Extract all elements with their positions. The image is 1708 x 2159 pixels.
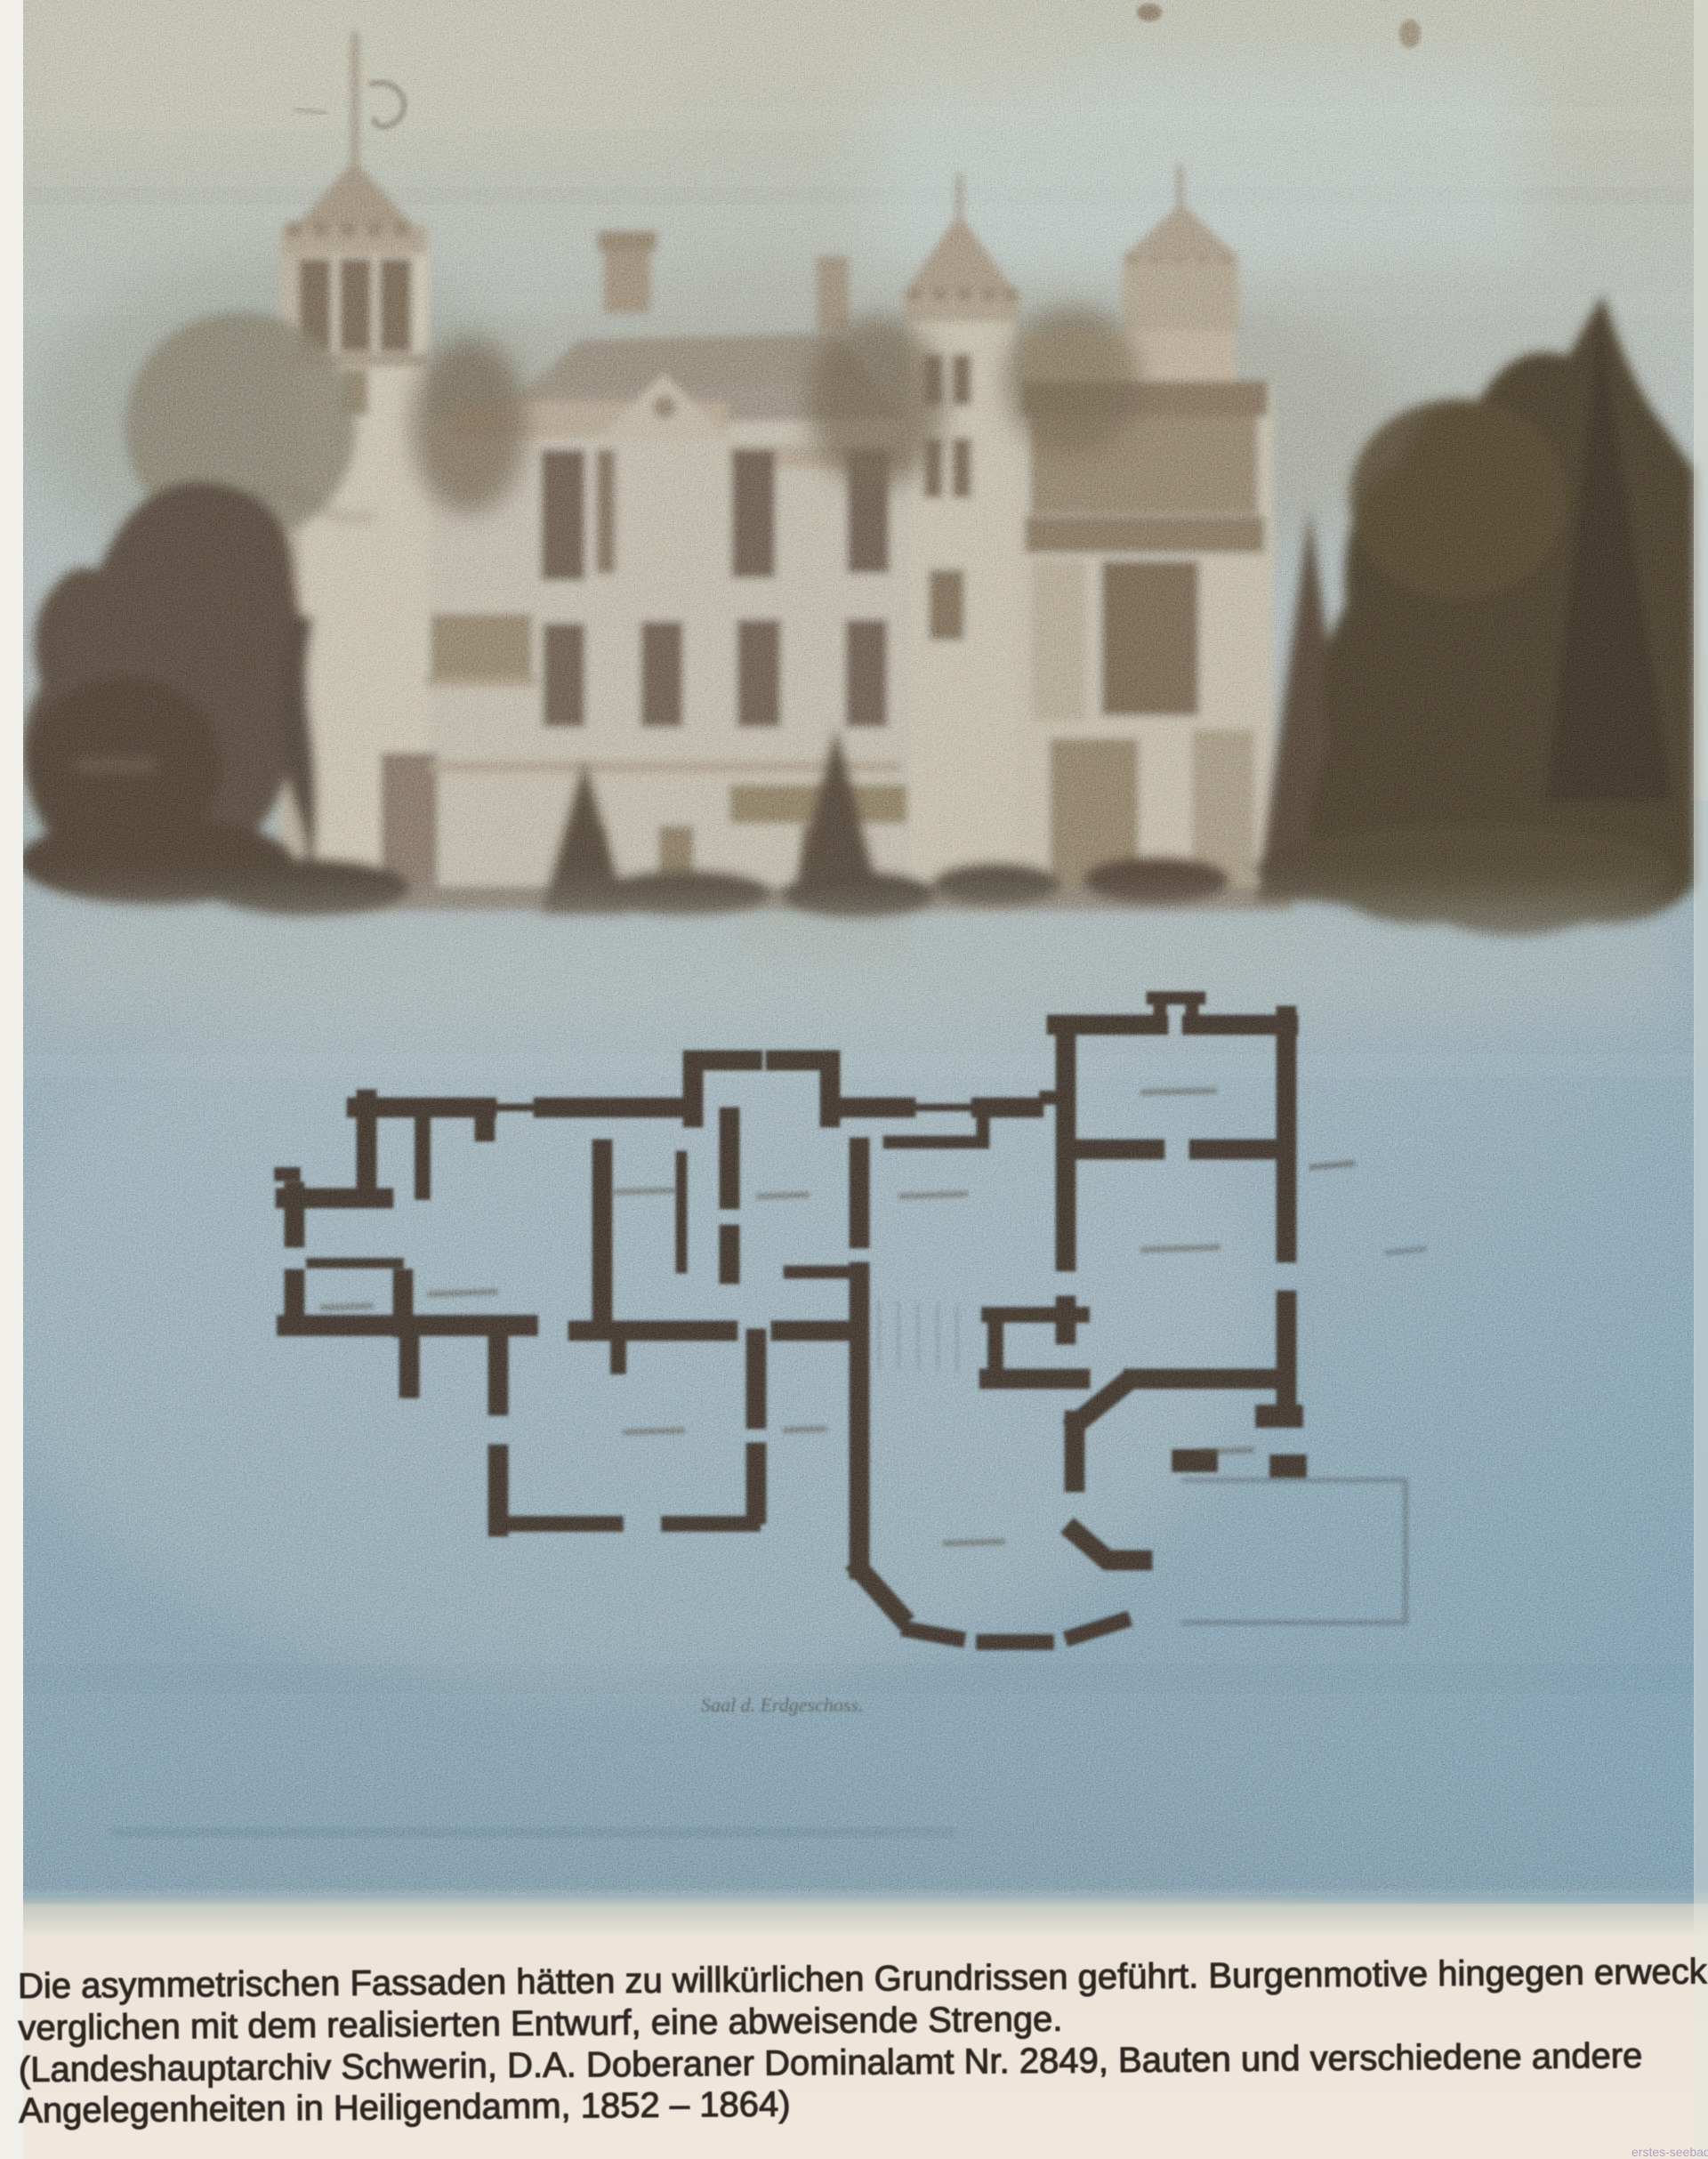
svg-text:Angelegenheiten in Heiligendam: Angelegenheiten in Heiligendamm, 1852 – … — [19, 2084, 791, 2131]
svg-text:erstes-seebad.de: erstes-seebad.de — [1631, 2145, 1708, 2159]
